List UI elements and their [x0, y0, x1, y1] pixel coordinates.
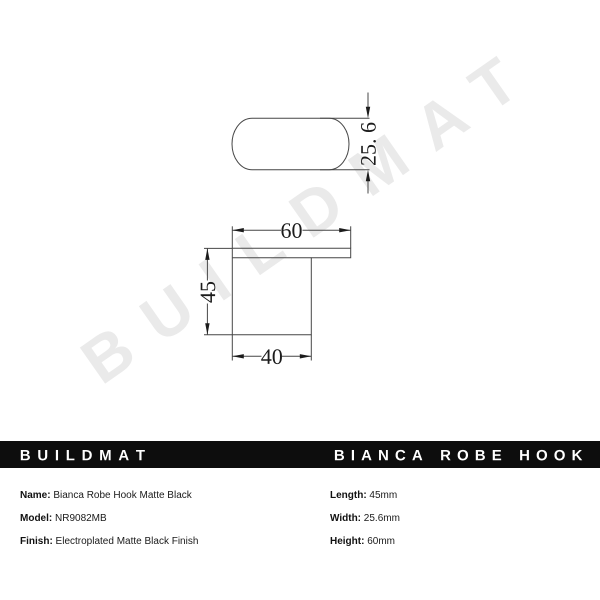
svg-text:BUILDMAT: BUILDMAT [68, 29, 551, 398]
